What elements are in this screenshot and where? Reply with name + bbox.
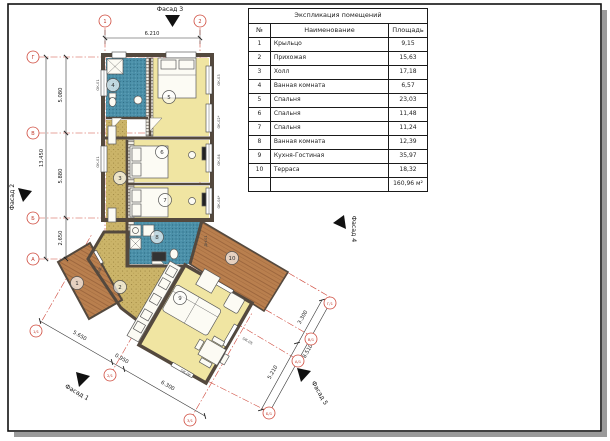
room-badge-4: 4 bbox=[111, 83, 115, 89]
dim-left-total: 13.450 bbox=[39, 149, 45, 167]
toilet bbox=[170, 249, 178, 259]
window-tag: ОК-01 bbox=[96, 79, 100, 90]
room-badge-10: 10 bbox=[229, 256, 236, 262]
col-header-number: № bbox=[249, 24, 271, 38]
table-cell: 18,32 bbox=[389, 164, 428, 178]
grid-axis-g: Г bbox=[31, 55, 34, 61]
table-cell: 7 bbox=[249, 122, 271, 136]
total-area: 160,96 м² bbox=[389, 178, 428, 192]
table-cell: 10 bbox=[249, 164, 271, 178]
table-row: 7Спальня11,24 bbox=[249, 122, 428, 136]
grid-axis-1: 1 bbox=[103, 19, 106, 25]
dim-top: 6.210 bbox=[145, 31, 160, 37]
table-cell: 11,24 bbox=[389, 122, 428, 136]
table-cell: Спальня bbox=[270, 94, 388, 108]
dim-left-seg: 2.650 bbox=[58, 231, 64, 246]
table-cell: Ванная комната bbox=[270, 80, 388, 94]
table-row: 8Ванная комната12,39 bbox=[249, 136, 428, 150]
door-tag: ДН-01 bbox=[204, 235, 208, 246]
tv bbox=[202, 193, 206, 206]
room-badge-5: 5 bbox=[167, 95, 171, 101]
table-cell: 35,97 bbox=[389, 150, 428, 164]
table-cell: 5 bbox=[249, 94, 271, 108]
table-row: 9Кухня-Гостиная35,97 bbox=[249, 150, 428, 164]
room-badge-7: 7 bbox=[163, 198, 167, 204]
table-cell: Кухня-Гостиная bbox=[270, 150, 388, 164]
table-cell: 2 bbox=[249, 52, 271, 66]
table-cell: 8 bbox=[249, 136, 271, 150]
grid-axis-1-1: 1/1 bbox=[33, 329, 40, 334]
table-cell: Спальня bbox=[270, 108, 388, 122]
table-row: 4Ванная комната6,57 bbox=[249, 80, 428, 94]
table-cell: 11,48 bbox=[389, 108, 428, 122]
facade-2-label: Фасад 2 bbox=[9, 184, 16, 211]
grid-axis-v-1: В/1 bbox=[308, 337, 315, 342]
table-cell: 23,03 bbox=[389, 94, 428, 108]
table-cell: 9,15 bbox=[389, 38, 428, 52]
table-cell: 4 bbox=[249, 80, 271, 94]
facade-3-label: Фасад 3 bbox=[157, 6, 184, 13]
table-cell: Крыльцо bbox=[270, 38, 388, 52]
grid-axis-a: А bbox=[31, 257, 35, 263]
table-body: 1Крыльцо9,152Прихожая15,633Холл17,184Ван… bbox=[249, 38, 428, 178]
room-badge-2: 2 bbox=[118, 285, 122, 291]
total-empty-cell bbox=[270, 178, 388, 192]
sheet-shadow-bottom bbox=[14, 432, 607, 437]
facade-4-label: Фасад 4 bbox=[350, 216, 357, 243]
room-badge-6: 6 bbox=[160, 150, 164, 156]
window-tag: ОК-04* bbox=[217, 195, 221, 208]
table-title: Экспликация помещений bbox=[249, 9, 428, 24]
table-header-row: № Наименование Площадь bbox=[249, 24, 428, 38]
window-tag: ОК-02* bbox=[217, 115, 221, 128]
sheet-shadow-right bbox=[602, 10, 607, 436]
window-tag: ОК-04 bbox=[217, 154, 221, 166]
table-cell: 12,39 bbox=[389, 136, 428, 150]
table-row: 10Терраса18,32 bbox=[249, 164, 428, 178]
room-badge-9: 9 bbox=[178, 296, 182, 302]
table-cell: Ванная комната bbox=[270, 136, 388, 150]
table-cell: 6,57 bbox=[389, 80, 428, 94]
total-empty-cell bbox=[249, 178, 271, 192]
table-cell: 1 bbox=[249, 38, 271, 52]
grid-axis-a-1: А/1 bbox=[295, 359, 302, 364]
table-row: 2Прихожая15,63 bbox=[249, 52, 428, 66]
col-header-area: Площадь bbox=[389, 24, 428, 38]
room-badge-3: 3 bbox=[118, 176, 122, 182]
drawing-sheet: 6.210 13.450 5.080 5.880 2.650 5.650 0.9… bbox=[0, 0, 610, 441]
room-badge-8: 8 bbox=[155, 235, 159, 241]
table-row: 3Холл17,18 bbox=[249, 66, 428, 80]
side-table bbox=[189, 152, 196, 159]
table-cell: Спальня bbox=[270, 122, 388, 136]
window-tag: ОК-01 bbox=[96, 156, 100, 167]
table-row: 5Спальня23,03 bbox=[249, 94, 428, 108]
table-cell: Терраса bbox=[270, 164, 388, 178]
side-table bbox=[189, 198, 196, 205]
table-cell: Прихожая bbox=[270, 52, 388, 66]
table-row: 1Крыльцо9,15 bbox=[249, 38, 428, 52]
table-cell: 3 bbox=[249, 66, 271, 80]
grid-axis-3-1: 3/1 bbox=[187, 418, 194, 423]
table-title-row: Экспликация помещений bbox=[249, 9, 428, 24]
col-header-name: Наименование bbox=[270, 24, 388, 38]
grid-axis-b-1: Б/1 bbox=[266, 411, 273, 416]
dim-left-seg: 5.880 bbox=[58, 169, 64, 184]
room-badge-1: 1 bbox=[75, 281, 79, 287]
table-cell: 6 bbox=[249, 108, 271, 122]
table-cell: Холл bbox=[270, 66, 388, 80]
table-cell: 9 bbox=[249, 150, 271, 164]
tv bbox=[202, 147, 206, 160]
grid-axis-2-1: 2/1 bbox=[107, 373, 114, 378]
table-total-row: 160,96 м² bbox=[249, 178, 428, 192]
grid-axis-v: В bbox=[31, 131, 35, 137]
grid-axis-2: 2 bbox=[198, 19, 201, 25]
room-explication-table: Экспликация помещений № Наименование Пло… bbox=[248, 8, 428, 192]
window-tag: ОК-03 bbox=[217, 74, 221, 85]
table-cell: 15,63 bbox=[389, 52, 428, 66]
dim-left-seg: 5.080 bbox=[58, 88, 64, 103]
table-row: 6Спальня11,48 bbox=[249, 108, 428, 122]
sink bbox=[134, 96, 142, 104]
grid-axis-g-1: Г/1 bbox=[327, 301, 334, 306]
grid-axis-b: Б bbox=[31, 216, 35, 222]
counter bbox=[152, 252, 166, 261]
table-cell: 17,18 bbox=[389, 66, 428, 80]
